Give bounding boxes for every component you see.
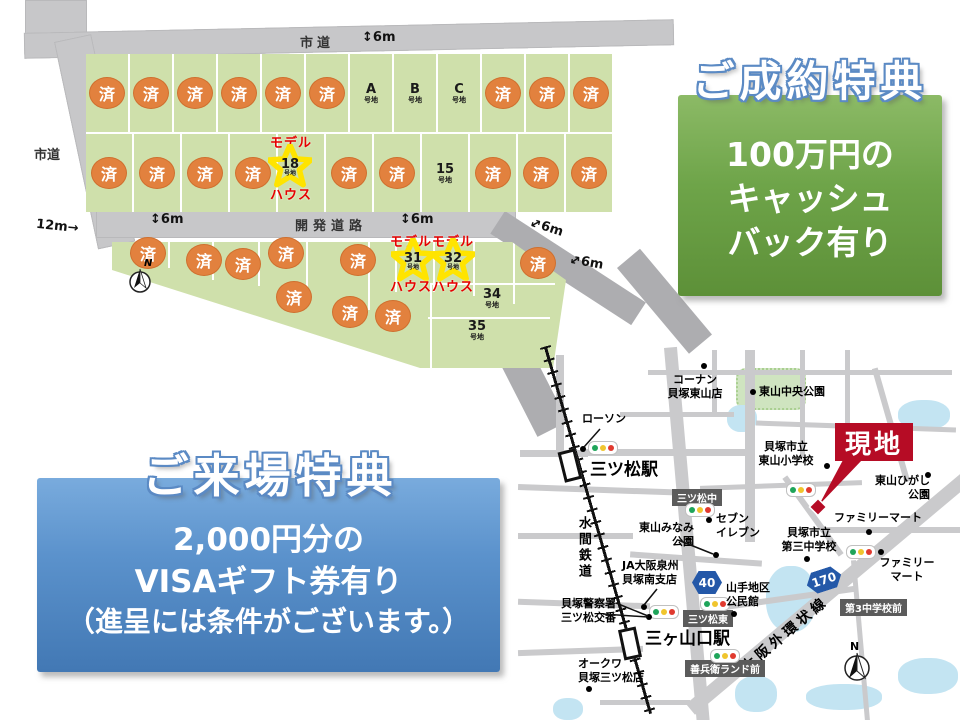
lot-31-number: 31号地: [391, 252, 435, 271]
pond: [735, 676, 777, 712]
poi-seven-eleven: セブンイレブン: [716, 512, 760, 541]
lot: 済: [526, 54, 570, 132]
map-road: [700, 480, 862, 491]
lot-b: B号地: [394, 54, 438, 132]
lot: 済: [218, 54, 262, 132]
lot-35: 35号地: [457, 320, 497, 341]
poi-dot: [646, 614, 652, 620]
railway-name: 水間鉄道: [574, 516, 591, 592]
traffic-light-icon: [710, 649, 740, 663]
lot: 済: [482, 54, 526, 132]
sold-lot: 済: [276, 281, 312, 313]
arrow-updown-icon: ↕: [150, 212, 161, 227]
sold-lot: 済: [475, 157, 511, 189]
visit-benefit-box: 2,000円分の VISAギフト券有り （進呈には条件がございます。）: [37, 478, 500, 672]
poi-dot: [731, 611, 737, 617]
house-label-18: ハウス: [270, 184, 312, 203]
lot-row-2: 済 済 済 済 済 済 15号地 済 済 済: [86, 134, 612, 212]
visit-benefit-title: ご来場特典: [90, 440, 450, 506]
sold-lot: 済: [265, 77, 301, 109]
poi-dot: [804, 556, 810, 562]
lot: 済: [566, 134, 612, 212]
sold-lot: 済: [187, 157, 223, 189]
poi-junior-high: 貝塚市立第三中学校: [768, 526, 850, 555]
lot: 済: [570, 54, 612, 132]
sold-lot: 済: [309, 77, 345, 109]
poi-konan: コーナン貝塚東山店: [650, 373, 740, 402]
map-compass-n-label: N: [850, 640, 859, 653]
sold-lot: 済: [523, 157, 559, 189]
contract-benefit-line2: キャッシュ: [678, 177, 942, 221]
poi-ja-bank: JA大阪泉州貝塚南支店: [622, 559, 679, 588]
lot-c: C号地: [438, 54, 482, 132]
visit-benefit-line2: VISAギフト券有り: [37, 562, 500, 604]
poi-dot: [750, 389, 756, 395]
dim-top: ↕6m: [362, 30, 396, 45]
sold-lot: 済: [225, 248, 261, 280]
lot: 済: [518, 134, 566, 212]
poi-higashi-park: 東山ひがし公園: [856, 474, 930, 503]
contract-benefit-line1: 100万円の: [678, 133, 942, 177]
sold-lot: 済: [529, 77, 565, 109]
road-left-label: 市道: [34, 144, 60, 163]
upper-lot-block: 済 済 済 済 済 済 A号地 B号地 C号地 済 済 済 済 済 済 済 済 …: [86, 54, 612, 212]
poi-dot: [586, 686, 592, 692]
sold-lot: 済: [375, 300, 411, 332]
lot: 済: [86, 134, 134, 212]
sold-lot: 済: [571, 157, 607, 189]
lot: 済: [134, 134, 182, 212]
sold-lot: 済: [340, 244, 376, 276]
flyer-page: 市道 ↕6m 市道 12m→ ↕6m 開発道路 ↕6m ↔6m ↔6m 済 済 …: [0, 0, 960, 720]
map-road: [518, 484, 693, 496]
traffic-light-icon: [786, 483, 816, 497]
contract-benefit-line3: バック有り: [678, 221, 942, 265]
arrow-right-icon: →: [67, 220, 79, 236]
traffic-light-icon: [588, 441, 618, 455]
poi-lawson: ローソン: [582, 412, 626, 426]
poi-chuo-park: 東山中央公園: [759, 385, 825, 399]
poi-dot: [878, 549, 884, 555]
road-stub-top: [25, 0, 87, 34]
sold-lot: 済: [221, 77, 257, 109]
sold-lot: 済: [89, 77, 125, 109]
traffic-light-icon: [846, 545, 876, 559]
dim-mid-left: ↕6m: [150, 212, 184, 227]
dim-mid-center: ↕6m: [400, 212, 434, 227]
sold-lot: 済: [235, 157, 271, 189]
poi-familymart-1: ファミリーマート: [834, 511, 922, 525]
lot: 済: [174, 54, 218, 132]
lot: 済: [470, 134, 518, 212]
arrow-updown-icon: ↕: [400, 212, 411, 227]
lot: 済: [374, 134, 422, 212]
lot-row-1: 済 済 済 済 済 済 A号地 B号地 C号地 済 済 済: [86, 54, 612, 134]
lot: 済: [86, 54, 130, 132]
poi-okuwa: オークワ貝塚三ツ松店: [578, 657, 644, 686]
lot: 済: [182, 134, 230, 212]
lot-a: A号地: [350, 54, 394, 132]
contract-benefit-title: ご成約特典: [664, 48, 956, 109]
sold-lot: 済: [133, 77, 169, 109]
sold-lot: 済: [332, 296, 368, 328]
house-label-31: ハウス: [390, 276, 432, 295]
busstop-mitsumatsu-higashi: 三ツ松東: [683, 610, 733, 627]
traffic-light-icon: [685, 503, 715, 517]
poi-dot: [580, 446, 586, 452]
poi-dot: [641, 604, 647, 610]
poi-dot: [701, 363, 707, 369]
sold-lot: 済: [177, 77, 213, 109]
sold-lot: 済: [91, 157, 127, 189]
visit-benefit-line3: （進呈には条件がございます。）: [37, 603, 500, 641]
lot: 済: [306, 54, 350, 132]
sold-lot: 済: [573, 77, 609, 109]
contract-benefit-box: 100万円の キャッシュ バック有り: [678, 95, 942, 296]
road-top: [24, 19, 674, 59]
station-symbol-mikeyamaguchi: [618, 626, 642, 660]
sold-lot: 済: [331, 157, 367, 189]
poi-elementary-school: 貝塚市立東山小学校: [746, 440, 826, 469]
lot-18-number: 18号地: [268, 158, 312, 177]
dim-left: 12m→: [35, 217, 79, 236]
lot: 済: [130, 54, 174, 132]
lot: 済: [326, 134, 374, 212]
pond: [553, 698, 583, 720]
station-name-mikeyamaguchi: 三ヶ山口駅: [645, 624, 730, 649]
poi-dot: [866, 529, 872, 535]
station-name-mitsumatsu: 三ツ松駅: [590, 455, 658, 480]
sold-lot: 済: [485, 77, 521, 109]
poi-dot: [706, 517, 712, 523]
road-top-label: 市道: [300, 32, 334, 51]
sold-lot: 済: [268, 237, 304, 269]
pond: [898, 658, 958, 694]
poi-familymart-2: ファミリーマート: [874, 556, 940, 585]
lot-15: 15号地: [422, 134, 470, 212]
poi-dot: [713, 552, 719, 558]
poi-police-box: 貝塚警察署三ツ松交番: [561, 597, 616, 626]
site-marker-callout: 現地: [835, 423, 913, 461]
visit-benefit-line1: 2,000円分の: [37, 520, 500, 562]
lot: 済: [262, 54, 306, 132]
sold-lot: 済: [186, 244, 222, 276]
sold-lot: 済: [520, 247, 556, 279]
sold-lot: 済: [379, 157, 415, 189]
road-development-label: 開発道路: [295, 215, 367, 234]
lot-34: 34号地: [472, 288, 512, 309]
lot-32-number: 32号地: [431, 252, 475, 271]
pond: [806, 684, 882, 710]
compass-n-label: N: [144, 258, 152, 269]
poi-minami-park: 東山みなみ公園: [628, 521, 694, 550]
sold-lot: 済: [139, 157, 175, 189]
poi-community-center: 山手地区公民館: [726, 581, 770, 610]
traffic-light-icon: [649, 605, 679, 619]
house-label-32: ハウス: [432, 276, 474, 295]
busstop-dai3-chugakko-mae: 第3中学校前: [840, 599, 907, 616]
arrow-updown-icon: ↕: [362, 30, 373, 45]
